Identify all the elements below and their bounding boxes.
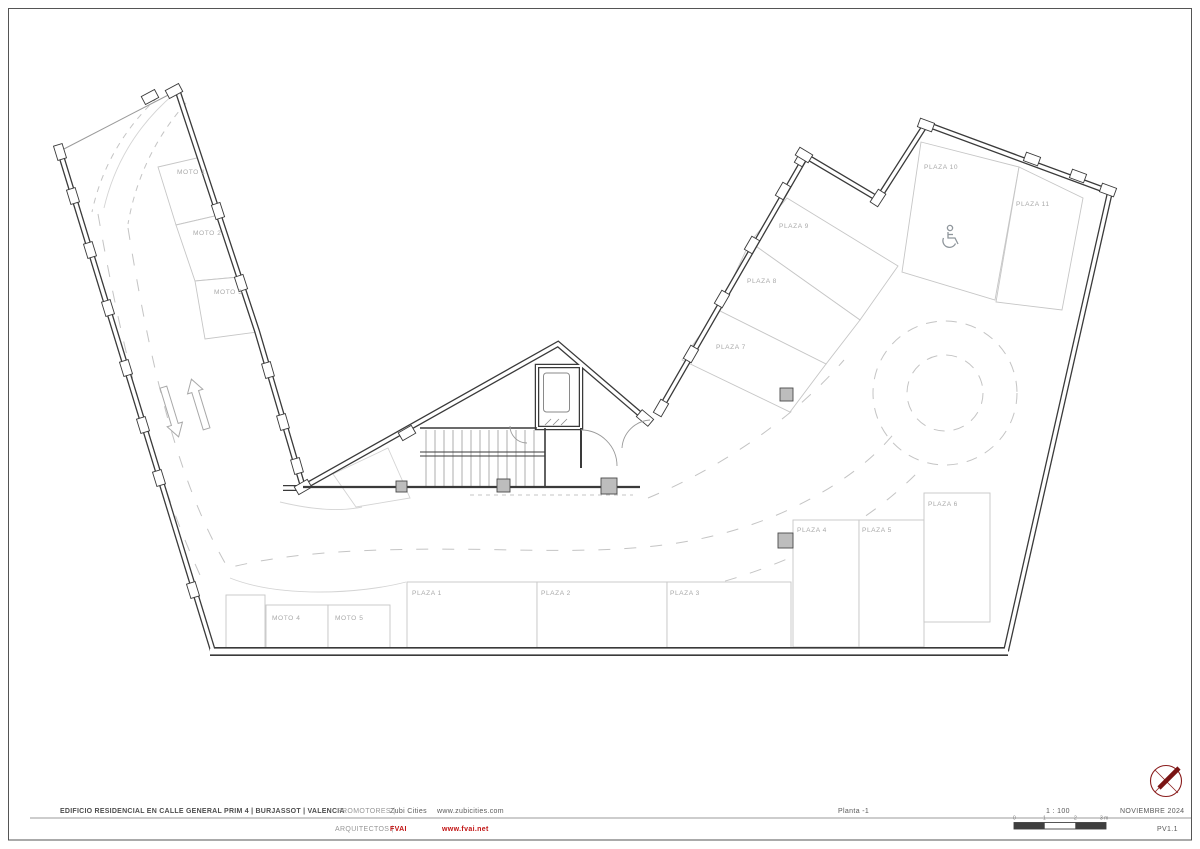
scale-tick-0: 0 — [1013, 816, 1016, 822]
structural-columns — [396, 388, 793, 548]
stair-treads — [426, 430, 534, 486]
promoters-name: Zubi Cities — [390, 808, 427, 815]
wall-pillar — [1099, 183, 1116, 197]
space-label-moto-1: MOTO 1 — [177, 169, 205, 176]
architects-label: ARQUITECTOS | — [335, 826, 394, 833]
structural-column — [778, 533, 793, 548]
door-arc — [581, 430, 617, 466]
wall-pillar — [120, 360, 133, 377]
wall-pillar — [262, 362, 275, 379]
space-plaza-6 — [924, 493, 990, 622]
architects-name: FVAI — [390, 826, 407, 833]
wall-pillar — [291, 458, 304, 475]
north-arrow-icon — [1151, 766, 1182, 797]
entry-edge-line — [62, 91, 176, 150]
space-label-plaza-8: PLAZA 8 — [747, 278, 777, 285]
wall-pillar — [141, 90, 158, 105]
drawing-sheet: MOTO 1 MOTO 2 MOTO 3 MOTO 4 MOTO 5 PLAZA… — [0, 0, 1200, 849]
wall-pillar — [277, 414, 290, 431]
structural-column — [497, 479, 510, 492]
space-small-box — [226, 595, 265, 648]
wall-pillar — [84, 242, 97, 259]
sheet-border — [9, 9, 1192, 841]
wall-pillar — [187, 582, 200, 599]
wall-pillar — [137, 417, 150, 434]
scale-tick-2: 2 — [1074, 816, 1077, 822]
space-label-plaza-5: PLAZA 5 — [862, 527, 892, 534]
structural-column — [601, 478, 617, 494]
structural-column — [780, 388, 793, 401]
space-label-moto-2: MOTO 2 — [193, 230, 221, 237]
scale-tick-3: 3 m — [1100, 816, 1108, 822]
floor-plan-svg: MOTO 1 MOTO 2 MOTO 3 MOTO 4 MOTO 5 PLAZA… — [0, 0, 1200, 849]
down-arrow-icon — [156, 385, 187, 439]
lane-edges — [104, 94, 406, 592]
space-label-plaza-6: PLAZA 6 — [928, 501, 958, 508]
space-label-plaza-1: PLAZA 1 — [412, 590, 442, 597]
space-moto-5 — [328, 605, 390, 648]
space-label-plaza-9: PLAZA 9 — [779, 223, 809, 230]
elevator — [544, 373, 570, 425]
space-label-moto-5: MOTO 5 — [335, 615, 363, 622]
title-block: EDIFICIO RESIDENCIAL EN CALLE GENERAL PR… — [30, 808, 1191, 833]
space-label-moto-4: MOTO 4 — [272, 615, 300, 622]
up-arrow-icon — [184, 377, 215, 431]
architects-url[interactable]: www.fvai.net — [441, 826, 489, 833]
scale-tick-1: 1 — [1043, 816, 1046, 822]
wall-pillar — [67, 188, 80, 205]
space-label-plaza-10: PLAZA 10 — [924, 164, 958, 171]
wall-pillar — [54, 144, 67, 161]
lane-dashes — [92, 97, 1017, 588]
project-title: EDIFICIO RESIDENCIAL EN CALLE GENERAL PR… — [60, 808, 345, 815]
structural-column — [396, 481, 407, 492]
wall-pillar — [102, 300, 115, 317]
space-unlabeled — [333, 448, 410, 507]
promoters-label: PROMOTORES | — [337, 808, 395, 815]
sheet-name: Planta -1 — [838, 808, 869, 815]
space-plaza-4 — [793, 520, 859, 647]
space-label-plaza-4: PLAZA 4 — [797, 527, 827, 534]
scale-value: 1 : 100 — [1046, 808, 1070, 815]
wall-pillar — [153, 470, 166, 487]
turning-circle-inner — [907, 355, 983, 431]
space-moto-4 — [266, 605, 328, 648]
space-plaza-5 — [859, 520, 924, 647]
space-label-moto-3: MOTO 3 — [214, 289, 242, 296]
space-label-plaza-2: PLAZA 2 — [541, 590, 571, 597]
scale-bar: 0 1 2 3 m — [1013, 816, 1108, 830]
sheet-code: PV1.1 — [1157, 826, 1178, 833]
turning-circle-outer — [873, 321, 1017, 465]
sheet-date: NOVIEMBRE 2024 — [1120, 808, 1184, 815]
space-label-plaza-7: PLAZA 7 — [716, 344, 746, 351]
space-label-plaza-11: PLAZA 11 — [1016, 201, 1050, 208]
space-label-plaza-3: PLAZA 3 — [670, 590, 700, 597]
promoters-url[interactable]: www.zubicities.com — [436, 808, 504, 815]
